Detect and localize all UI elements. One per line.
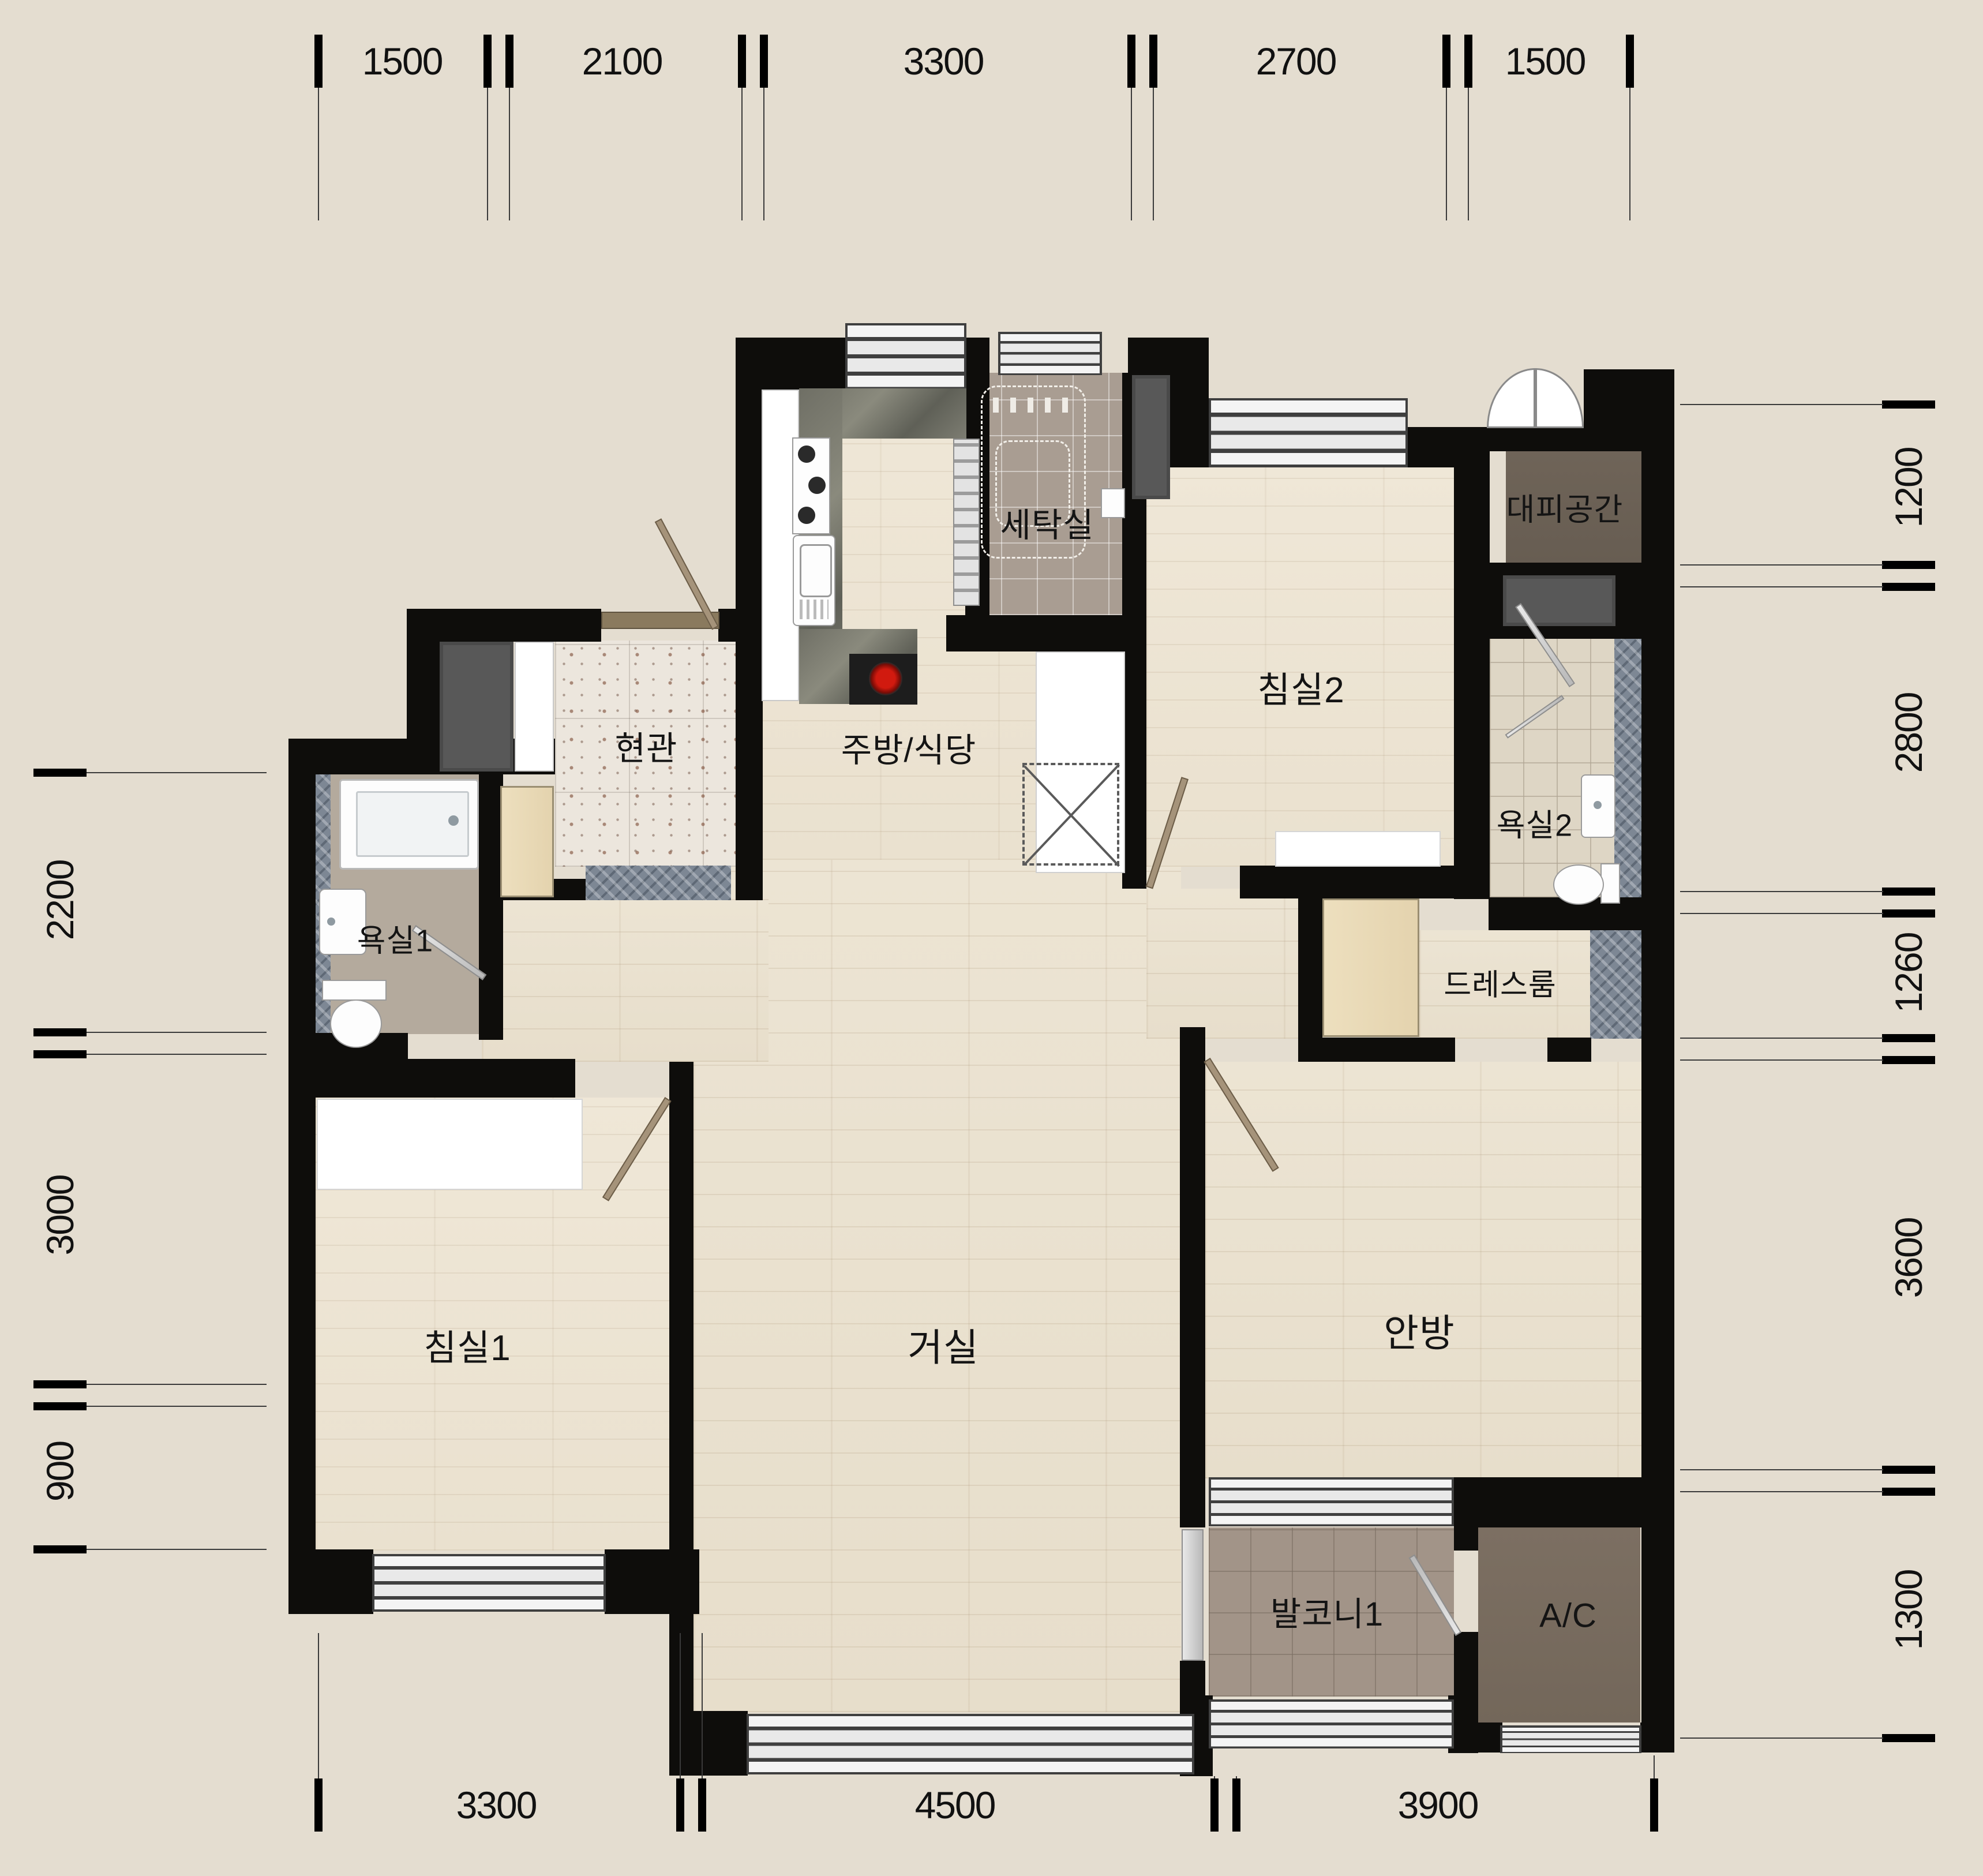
- dimension-tick: [1149, 35, 1157, 88]
- kitchen-sink: [793, 535, 835, 626]
- extension-line: [1680, 1491, 1883, 1492]
- bedroom1-wardrobe: [317, 1099, 583, 1190]
- dimension-tick: [738, 35, 746, 88]
- laundry-accordion-door: [953, 439, 980, 606]
- corridor-floor: [482, 899, 769, 1062]
- dimension-tick: [1882, 561, 1935, 569]
- extension-line: [1680, 586, 1883, 587]
- extension-line: [318, 88, 319, 220]
- extension-line: [1468, 88, 1469, 220]
- dimension-label-right-3: 3600: [1887, 1189, 1930, 1327]
- room-label-bedroom2: 침실2: [1257, 661, 1345, 713]
- dimension-tick: [33, 1050, 87, 1058]
- dimension-tick: [314, 35, 323, 88]
- wall: [479, 773, 503, 1040]
- bathtub-drain-icon: [448, 815, 459, 826]
- extension-line: [702, 1633, 703, 1778]
- extension-line: [318, 1633, 319, 1778]
- dimension-label-bottom-2: 3900: [1369, 1783, 1507, 1827]
- dimension-tick: [1442, 35, 1450, 88]
- room-label-laundry: 세탁실: [1000, 498, 1094, 546]
- laundry-window: [998, 332, 1102, 375]
- wall: [1584, 369, 1643, 428]
- extension-line: [509, 88, 510, 220]
- living-room-window: [747, 1714, 1194, 1774]
- wall: [288, 1549, 373, 1614]
- balcony-top-window: [1209, 1477, 1454, 1526]
- shelter-door-left: [1487, 368, 1535, 428]
- storage-closet: [1132, 375, 1170, 499]
- extension-line: [1153, 88, 1154, 220]
- wall: [605, 1549, 699, 1614]
- dimension-label-right-1: 2800: [1887, 664, 1930, 802]
- extension-line: [87, 1406, 267, 1407]
- toilet-bowl: [330, 999, 382, 1048]
- extension-line: [1214, 1776, 1215, 1778]
- bath2-toilet: [1553, 861, 1622, 907]
- bathtub: [339, 779, 479, 870]
- dimension-tick: [1210, 1778, 1219, 1832]
- room-label-bedroom1: 침실1: [423, 1319, 511, 1371]
- room-label-entrance: 현관: [615, 721, 678, 770]
- laundry-sink: [1101, 488, 1125, 518]
- entrance-threshold: [586, 866, 731, 900]
- balcony-bottom-window: [1209, 1699, 1454, 1748]
- extension-line: [1680, 913, 1883, 914]
- wall: [407, 609, 440, 774]
- wall: [288, 739, 316, 1614]
- extension-line: [1446, 88, 1447, 220]
- shoe-cabinet: [500, 786, 554, 897]
- dimension-label-right-4: 1300: [1887, 1541, 1930, 1679]
- wall: [946, 615, 1146, 651]
- gas-stove: [792, 437, 830, 534]
- extension-line: [1680, 1738, 1883, 1739]
- dimension-tick: [483, 35, 492, 88]
- dressroom-cabinet: [1322, 898, 1419, 1037]
- dimension-label-top-2: 3300: [874, 39, 1013, 83]
- refrigerator-outline: [1022, 763, 1119, 866]
- extension-line: [680, 1633, 681, 1778]
- extension-line: [1654, 1755, 1655, 1778]
- bath2-sink: [1581, 774, 1615, 838]
- wall: [1180, 1027, 1205, 1527]
- dimension-tick: [1882, 1056, 1935, 1064]
- dimension-label-top-4: 1500: [1476, 39, 1614, 83]
- extension-line: [741, 88, 743, 220]
- room-label-balcony1: 발코니1: [1270, 1587, 1384, 1635]
- bedroom1-window: [372, 1554, 606, 1612]
- extension-line: [763, 88, 764, 220]
- sink-basin: [800, 544, 832, 597]
- wall: [1454, 1526, 1478, 1551]
- dimension-label-bottom-0: 3300: [427, 1783, 565, 1827]
- shelter-door-right: [1535, 368, 1584, 428]
- bath1-toilet: [322, 980, 390, 1048]
- wall: [1641, 369, 1674, 1751]
- extension-line: [1680, 891, 1883, 892]
- dimension-label-right-2: 1260: [1887, 904, 1930, 1042]
- room-label-shelter: 대피공간: [1506, 484, 1624, 530]
- wall: [1298, 1038, 1455, 1062]
- extension-line: [87, 772, 267, 773]
- shelter-closet: [1503, 575, 1615, 626]
- drain-icon: [327, 918, 335, 926]
- dimension-label-left-1: 3000: [38, 1146, 82, 1285]
- wall: [718, 609, 769, 642]
- dimension-label-top-1: 2100: [553, 39, 691, 83]
- wall: [1454, 427, 1490, 899]
- toilet-bowl: [1553, 864, 1604, 905]
- wall: [1454, 1477, 1674, 1527]
- wall: [669, 1711, 748, 1776]
- dimension-tick: [33, 1028, 87, 1036]
- room-label-ac: A/C: [1539, 1597, 1597, 1635]
- dimension-tick: [676, 1778, 684, 1832]
- bedroom2-furniture: [1275, 831, 1441, 867]
- master-bedroom-floor: [1205, 1062, 1641, 1478]
- room-label-kitchen: 주방/식당: [841, 723, 977, 772]
- room-label-dressroom: 드레스룸: [1444, 961, 1556, 1004]
- extension-line: [87, 1054, 267, 1055]
- bath2-marble-strip: [1614, 639, 1641, 897]
- dimension-tick: [1882, 1734, 1935, 1742]
- induction-cooktop: [849, 654, 917, 705]
- dimension-tick: [1650, 1778, 1658, 1832]
- extension-line: [87, 1032, 267, 1033]
- hallway-floor: [1146, 889, 1298, 1039]
- dimension-tick: [33, 1380, 87, 1388]
- dimension-label-bottom-1: 4500: [886, 1783, 1024, 1827]
- extension-line: [1680, 1038, 1883, 1039]
- drain-icon: [1594, 801, 1602, 809]
- wall: [1454, 1632, 1478, 1698]
- extension-line: [1680, 404, 1883, 405]
- room-label-bath1: 욕실1: [357, 915, 433, 961]
- wall: [1640, 1723, 1674, 1753]
- extension-line: [1131, 88, 1132, 220]
- dimension-tick: [1882, 888, 1935, 896]
- extension-line: [1680, 1469, 1883, 1470]
- toilet-tank: [322, 980, 387, 1001]
- extension-line: [1680, 564, 1883, 566]
- dimension-tick: [1882, 400, 1935, 409]
- dimension-tick: [314, 1778, 323, 1832]
- room-label-living: 거실: [908, 1317, 979, 1372]
- entry-closet-dark: [440, 642, 513, 772]
- extension-line: [487, 88, 488, 220]
- induction-ring-icon: [869, 662, 902, 695]
- balcony-sliding-door: [1182, 1529, 1204, 1661]
- dimension-label-top-3: 2700: [1227, 39, 1365, 83]
- dimension-label-right-0: 1200: [1887, 418, 1930, 557]
- washer-panel-icon: [993, 398, 1074, 413]
- floor-plan-canvas: 세탁실 대피공간 침실2 욕실2 현관 주방/식당 욕실1 드레스룸 침실1 거…: [0, 0, 1983, 1876]
- dressroom-marble-strip: [1590, 930, 1641, 1039]
- burner-icon: [798, 445, 815, 463]
- bedroom2-window: [1209, 398, 1408, 467]
- dimension-tick: [760, 35, 768, 88]
- dimension-tick: [698, 1778, 706, 1832]
- sink-rack: [800, 600, 829, 619]
- extension-line: [1680, 1059, 1883, 1061]
- dimension-tick: [1882, 1466, 1935, 1474]
- dimension-tick: [33, 1545, 87, 1553]
- wall: [1547, 1038, 1591, 1062]
- kitchen-window: [845, 323, 966, 390]
- wall: [1478, 1723, 1502, 1753]
- wall: [1298, 897, 1322, 1039]
- dimension-tick: [1882, 1488, 1935, 1496]
- ac-room-window: [1500, 1725, 1641, 1753]
- extension-line: [87, 1384, 267, 1385]
- burner-icon: [808, 477, 826, 494]
- extension-line: [1236, 1776, 1237, 1778]
- entrance-door-sill: [601, 612, 719, 629]
- wall: [1240, 866, 1489, 898]
- extension-line: [1629, 88, 1630, 220]
- dimension-tick: [1626, 35, 1634, 88]
- dimension-tick: [505, 35, 513, 88]
- dimension-tick: [1882, 583, 1935, 591]
- burner-icon: [798, 507, 815, 524]
- dimension-tick: [1127, 35, 1135, 88]
- dimension-label-left-2: 900: [38, 1402, 82, 1541]
- dimension-tick: [33, 769, 87, 777]
- extension-line: [87, 1549, 267, 1550]
- room-label-master: 안방: [1384, 1302, 1455, 1358]
- entry-closet-white: [515, 642, 554, 772]
- dimension-label-left-0: 2200: [38, 831, 82, 969]
- room-label-bath2: 욕실2: [1497, 800, 1573, 845]
- dimension-tick: [1464, 35, 1472, 88]
- dimension-tick: [1232, 1778, 1240, 1832]
- dimension-label-top-0: 1500: [333, 39, 471, 83]
